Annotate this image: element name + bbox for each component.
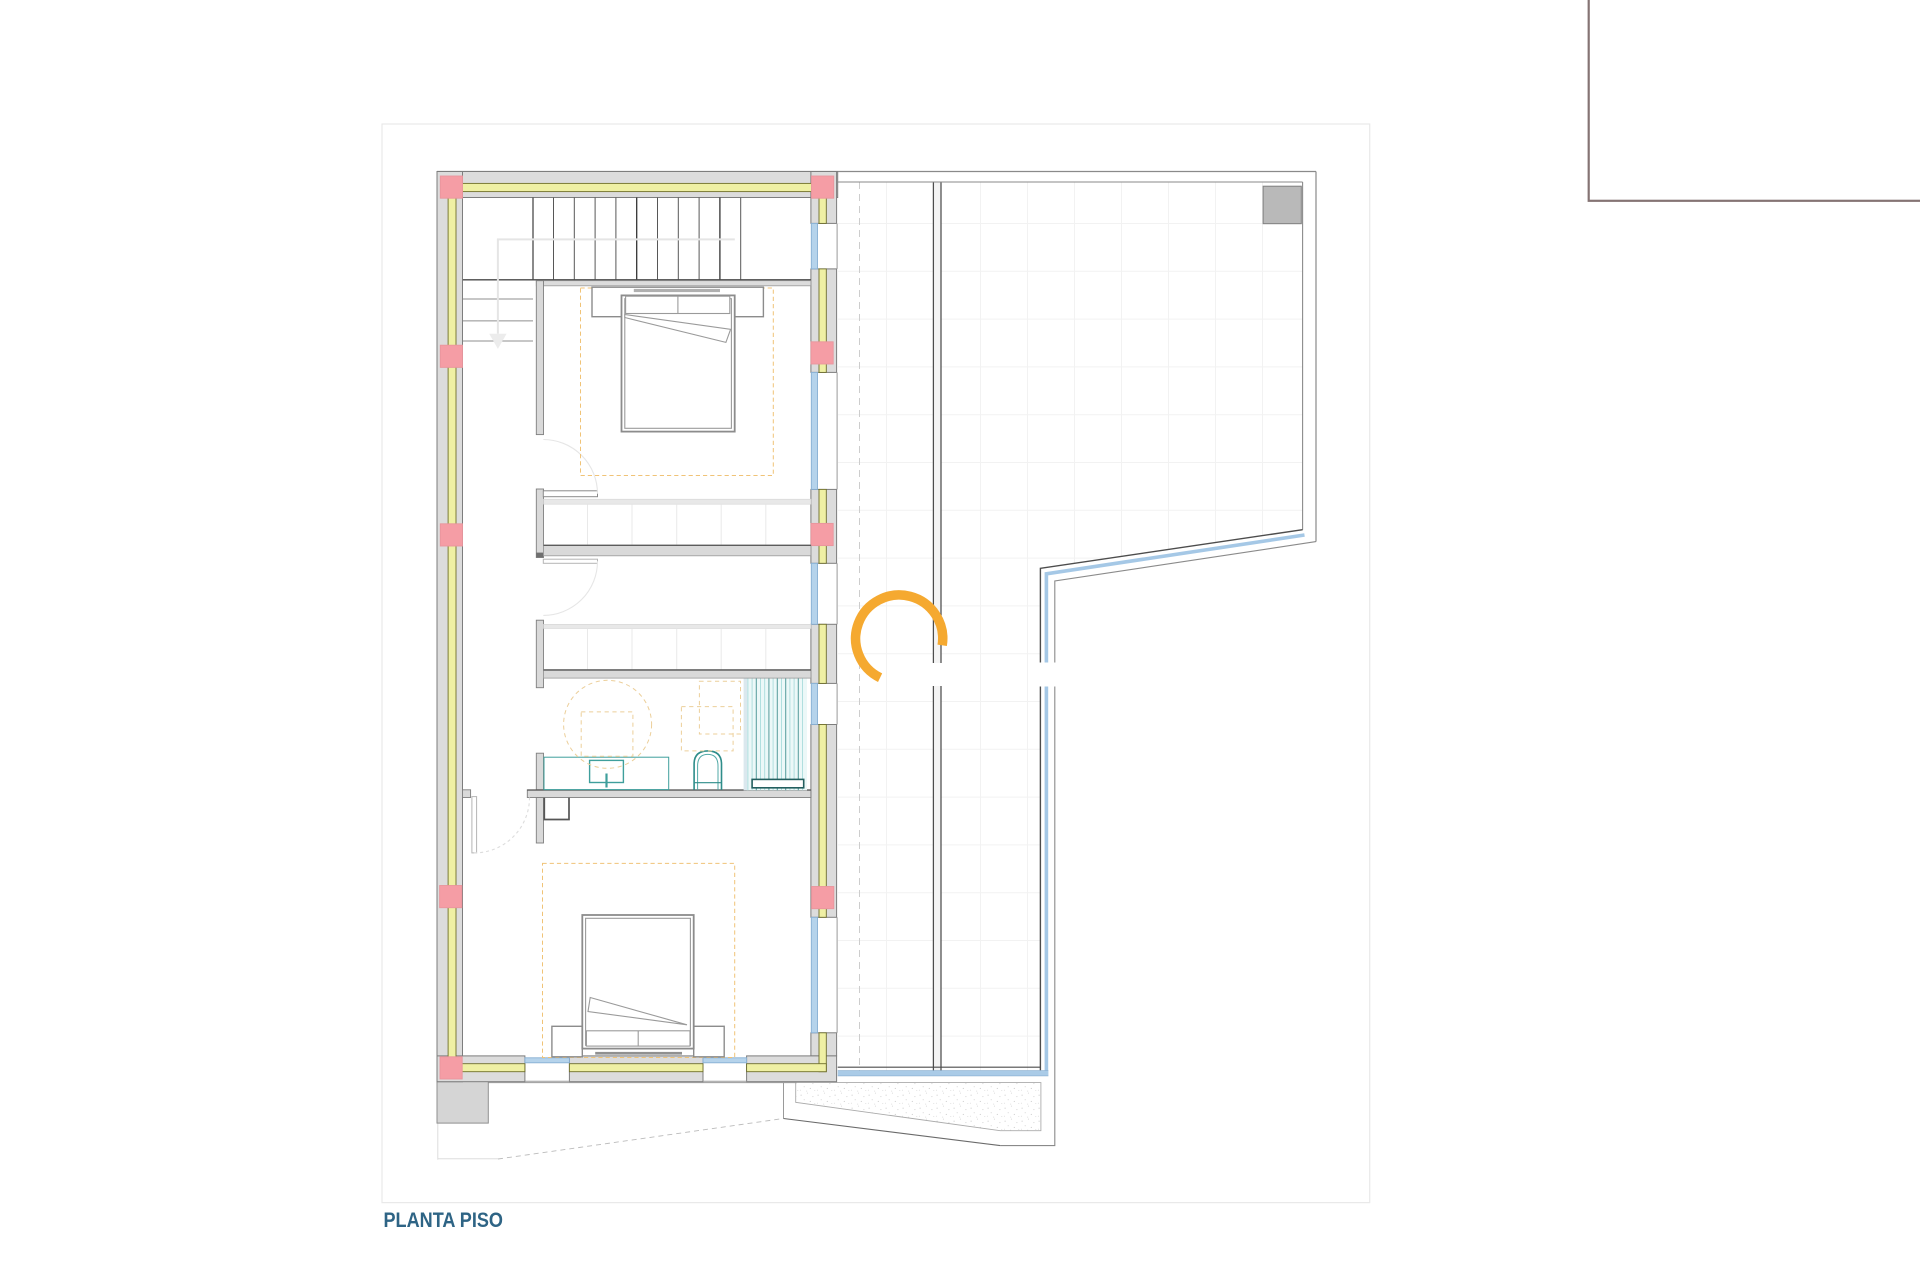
svg-text:PLANTA PISO: PLANTA PISO: [384, 1208, 504, 1232]
